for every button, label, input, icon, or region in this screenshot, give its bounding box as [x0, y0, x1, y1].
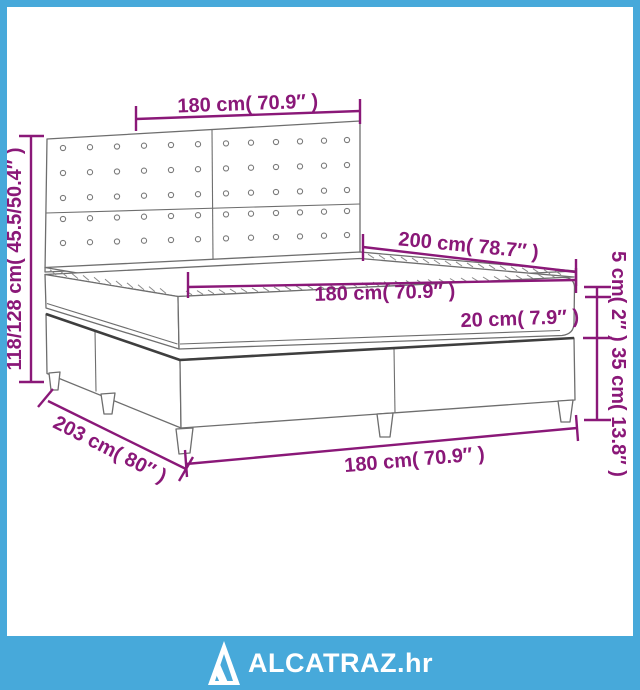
alcatraz-triangle-logo-icon	[207, 640, 241, 686]
product-dimension-diagram: 180 cm( 70.9″ ) 118/128 cm( 45.5/50.4″ )…	[0, 0, 640, 690]
dim-topper-base-heights-label: 5 cm( 2″ ) 35 cm( 13.8″ )	[607, 251, 629, 477]
dim-total-height: 118/128 cm( 45.5/50.4″ )	[4, 136, 44, 382]
bed-diagram-canvas: 180 cm( 70.9″ ) 118/128 cm( 45.5/50.4″ )…	[0, 0, 640, 690]
dim-mattress-thickness: 20 cm( 7.9″ )	[460, 306, 579, 332]
brand-banner: ALCATRAZ.hr	[0, 636, 640, 690]
dim-frame-length-label: 203 cm( 80″ )	[49, 412, 170, 488]
headboard	[45, 121, 360, 272]
dim-mattress-width-label: 180 cm( 70.9″ )	[314, 280, 455, 306]
dim-total-height-label: 118/128 cm( 45.5/50.4″ )	[4, 147, 26, 370]
dim-mattress-thickness-label: 20 cm( 7.9″ )	[460, 306, 579, 332]
brand-logo-text: ALCATRAZ.hr	[248, 648, 433, 679]
dim-topper-base-heights: 5 cm( 2″ ) 35 cm( 13.8″ )	[583, 251, 629, 477]
